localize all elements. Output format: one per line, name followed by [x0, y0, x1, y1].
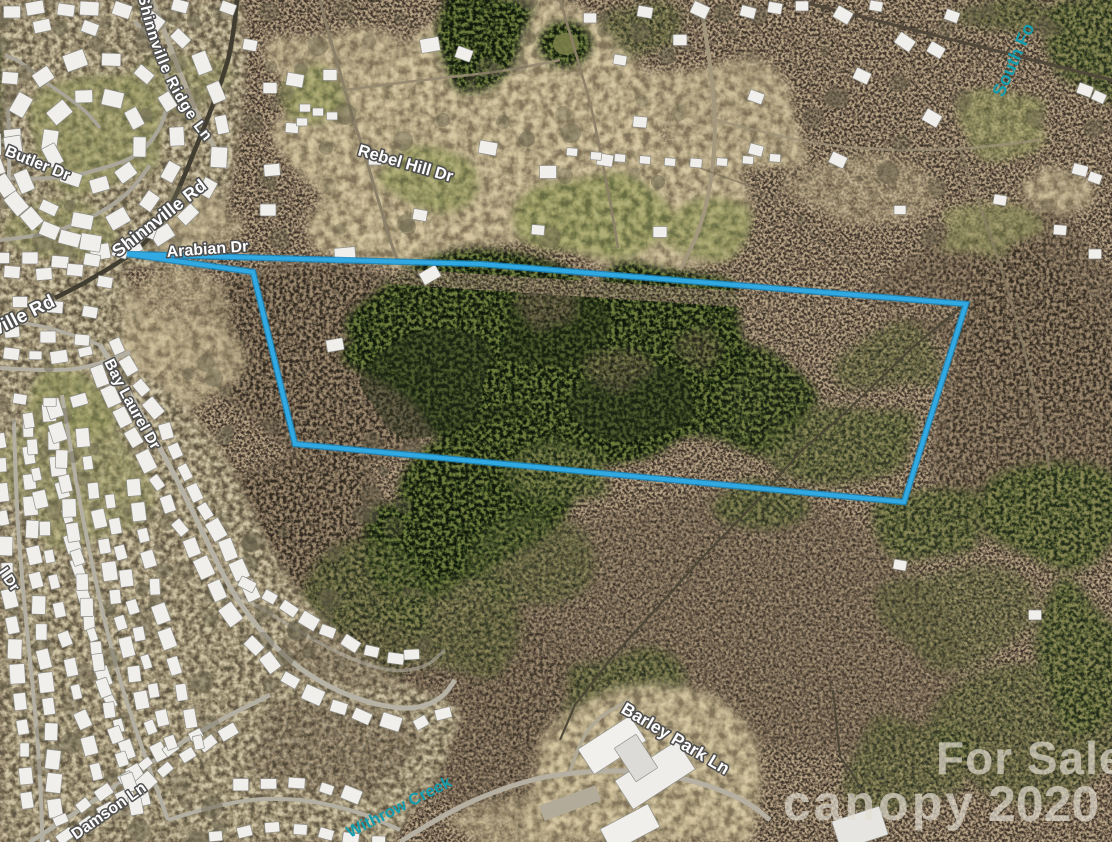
svg-text:2020: 2020	[988, 776, 1099, 832]
svg-text:canopy: canopy	[783, 775, 976, 831]
